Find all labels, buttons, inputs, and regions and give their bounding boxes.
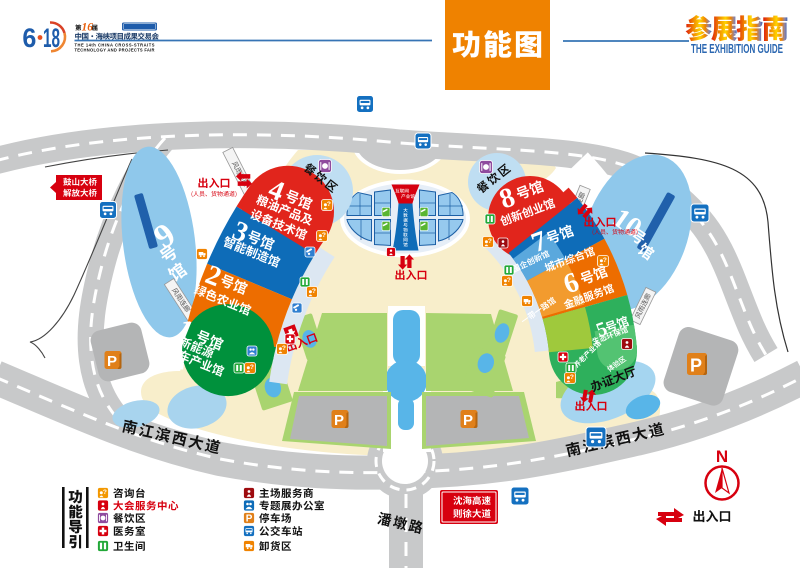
svg-text:16: 16 bbox=[82, 22, 94, 34]
svg-text:THE EXHIBITION GUIDE: THE EXHIBITION GUIDE bbox=[691, 41, 783, 56]
svg-text:P: P bbox=[246, 514, 253, 525]
svg-text:?: ? bbox=[603, 257, 607, 264]
svg-text:?: ? bbox=[103, 489, 107, 496]
svg-text:?: ? bbox=[282, 345, 286, 352]
svg-text:?: ? bbox=[312, 288, 316, 295]
svg-text:?: ? bbox=[250, 364, 254, 371]
svg-text:N: N bbox=[716, 447, 728, 466]
svg-text:P: P bbox=[334, 412, 344, 429]
svg-text:P: P bbox=[463, 412, 473, 429]
svg-text:TECHNOLOGY AND PROJECTS FAIR: TECHNOLOGY AND PROJECTS FAIR bbox=[75, 48, 155, 53]
svg-text:?: ? bbox=[507, 277, 511, 284]
svg-text:?: ? bbox=[488, 238, 492, 245]
svg-text:6: 6 bbox=[22, 22, 36, 53]
svg-text:P: P bbox=[690, 355, 702, 375]
svg-text:?: ? bbox=[322, 232, 326, 239]
svg-text:?: ? bbox=[570, 374, 574, 381]
svg-text:?: ? bbox=[327, 201, 331, 208]
svg-text:P: P bbox=[107, 353, 117, 370]
